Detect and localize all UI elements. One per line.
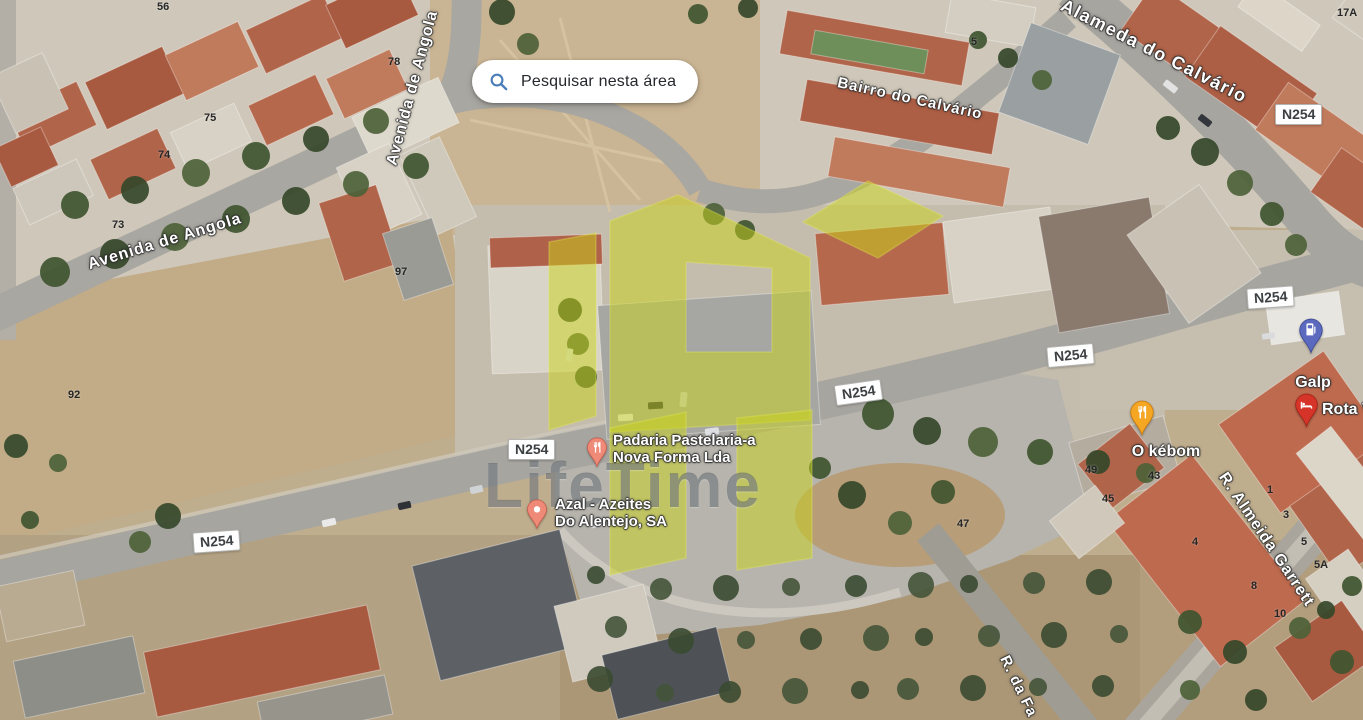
house-number-5b: 5 (1301, 536, 1307, 548)
place-pin[interactable] (526, 499, 548, 530)
house-number-97: 97 (395, 266, 407, 278)
poi-label-rota[interactable]: Rota V (1322, 400, 1363, 419)
search-this-area-button[interactable]: Pesquisar nesta área (472, 60, 698, 103)
house-number-17a: 17A (1337, 7, 1357, 19)
search-icon (489, 72, 508, 91)
poi-label-galp[interactable]: Galp (1280, 373, 1346, 392)
house-number-5: 5 (971, 36, 977, 48)
restaurant-pin[interactable] (586, 437, 608, 468)
house-number-5a: 5A (1314, 559, 1328, 571)
restaurant-pin-kebom[interactable] (1129, 400, 1155, 437)
road-shield-n254-4: N254 (1046, 343, 1095, 368)
road-shield-n254-1: N254 (508, 439, 555, 460)
house-number-45: 45 (1102, 493, 1114, 505)
house-number-8: 8 (1251, 580, 1257, 592)
poi-label-o-kebom[interactable]: O kébom (1130, 442, 1202, 461)
gas-station-pin[interactable] (1298, 318, 1324, 355)
map-canvas[interactable]: LifeTime Avenida de Angola Avenida de An… (0, 0, 1363, 720)
poi-label-padaria[interactable]: Padaria Pastelaria-a Nova Forma Lda (613, 432, 756, 466)
house-number-1: 1 (1267, 484, 1273, 496)
house-number-47: 47 (957, 518, 969, 530)
house-number-78: 78 (388, 56, 400, 68)
house-number-10: 10 (1274, 608, 1286, 620)
house-number-49: 49 (1085, 464, 1097, 476)
house-number-75: 75 (204, 112, 216, 124)
poi-label-azal[interactable]: Azal - Azeites Do Alentejo, SA (555, 496, 667, 530)
house-number-92: 92 (68, 389, 80, 401)
house-number-56: 56 (157, 1, 169, 13)
road-shield-n254-2: N254 (192, 529, 241, 553)
lodging-pin[interactable] (1294, 393, 1319, 428)
house-number-3: 3 (1283, 509, 1289, 521)
road-shield-n254-5: N254 (1246, 285, 1295, 309)
house-number-4: 4 (1192, 536, 1198, 548)
satellite-imagery (0, 0, 1363, 720)
house-number-43: 43 (1148, 470, 1160, 482)
road-shield-n254-6: N254 (1275, 104, 1322, 125)
search-button-label: Pesquisar nesta área (521, 73, 676, 91)
house-number-73: 73 (112, 219, 124, 231)
house-number-74: 74 (158, 149, 170, 161)
